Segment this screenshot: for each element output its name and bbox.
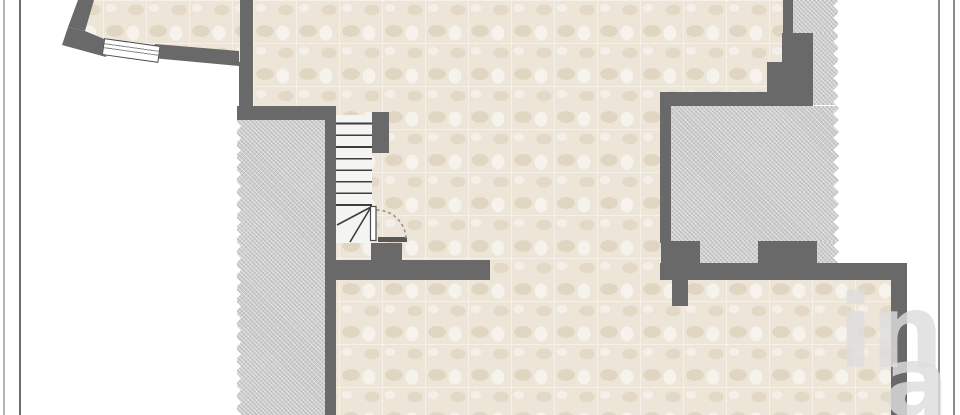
stair-winders (336, 206, 372, 243)
hatched-area-left (237, 120, 325, 415)
wall-main-room-south (660, 92, 813, 106)
watermark-text-secondary: a (884, 334, 947, 415)
torn-edge-right (833, 0, 841, 263)
wall-pier-1 (661, 241, 700, 264)
wall-stair-east (372, 112, 389, 153)
door-threshold (378, 237, 407, 242)
wall-left-horizontal (237, 106, 325, 120)
wall-right-top (783, 0, 793, 35)
hatched-area-right-top (793, 0, 838, 33)
wall-stair-south (335, 260, 490, 280)
floor-plan-canvas: in a (0, 0, 960, 415)
wall-pier-2 (758, 241, 817, 264)
wall-right-step-lower (767, 62, 813, 93)
wall-terrace-left (660, 106, 671, 243)
hatched-terrace-right (671, 106, 840, 242)
wall-stub (672, 280, 688, 306)
frame-line-left-outer (3, 0, 5, 415)
hatched-terrace-gap-1 (700, 242, 758, 263)
wall-room-divider (239, 0, 253, 120)
frame-line-left-inner (19, 0, 21, 415)
torn-edge-left (233, 120, 241, 415)
wall-right-step-upper (782, 33, 813, 64)
frame-line-right-outer (953, 0, 955, 415)
